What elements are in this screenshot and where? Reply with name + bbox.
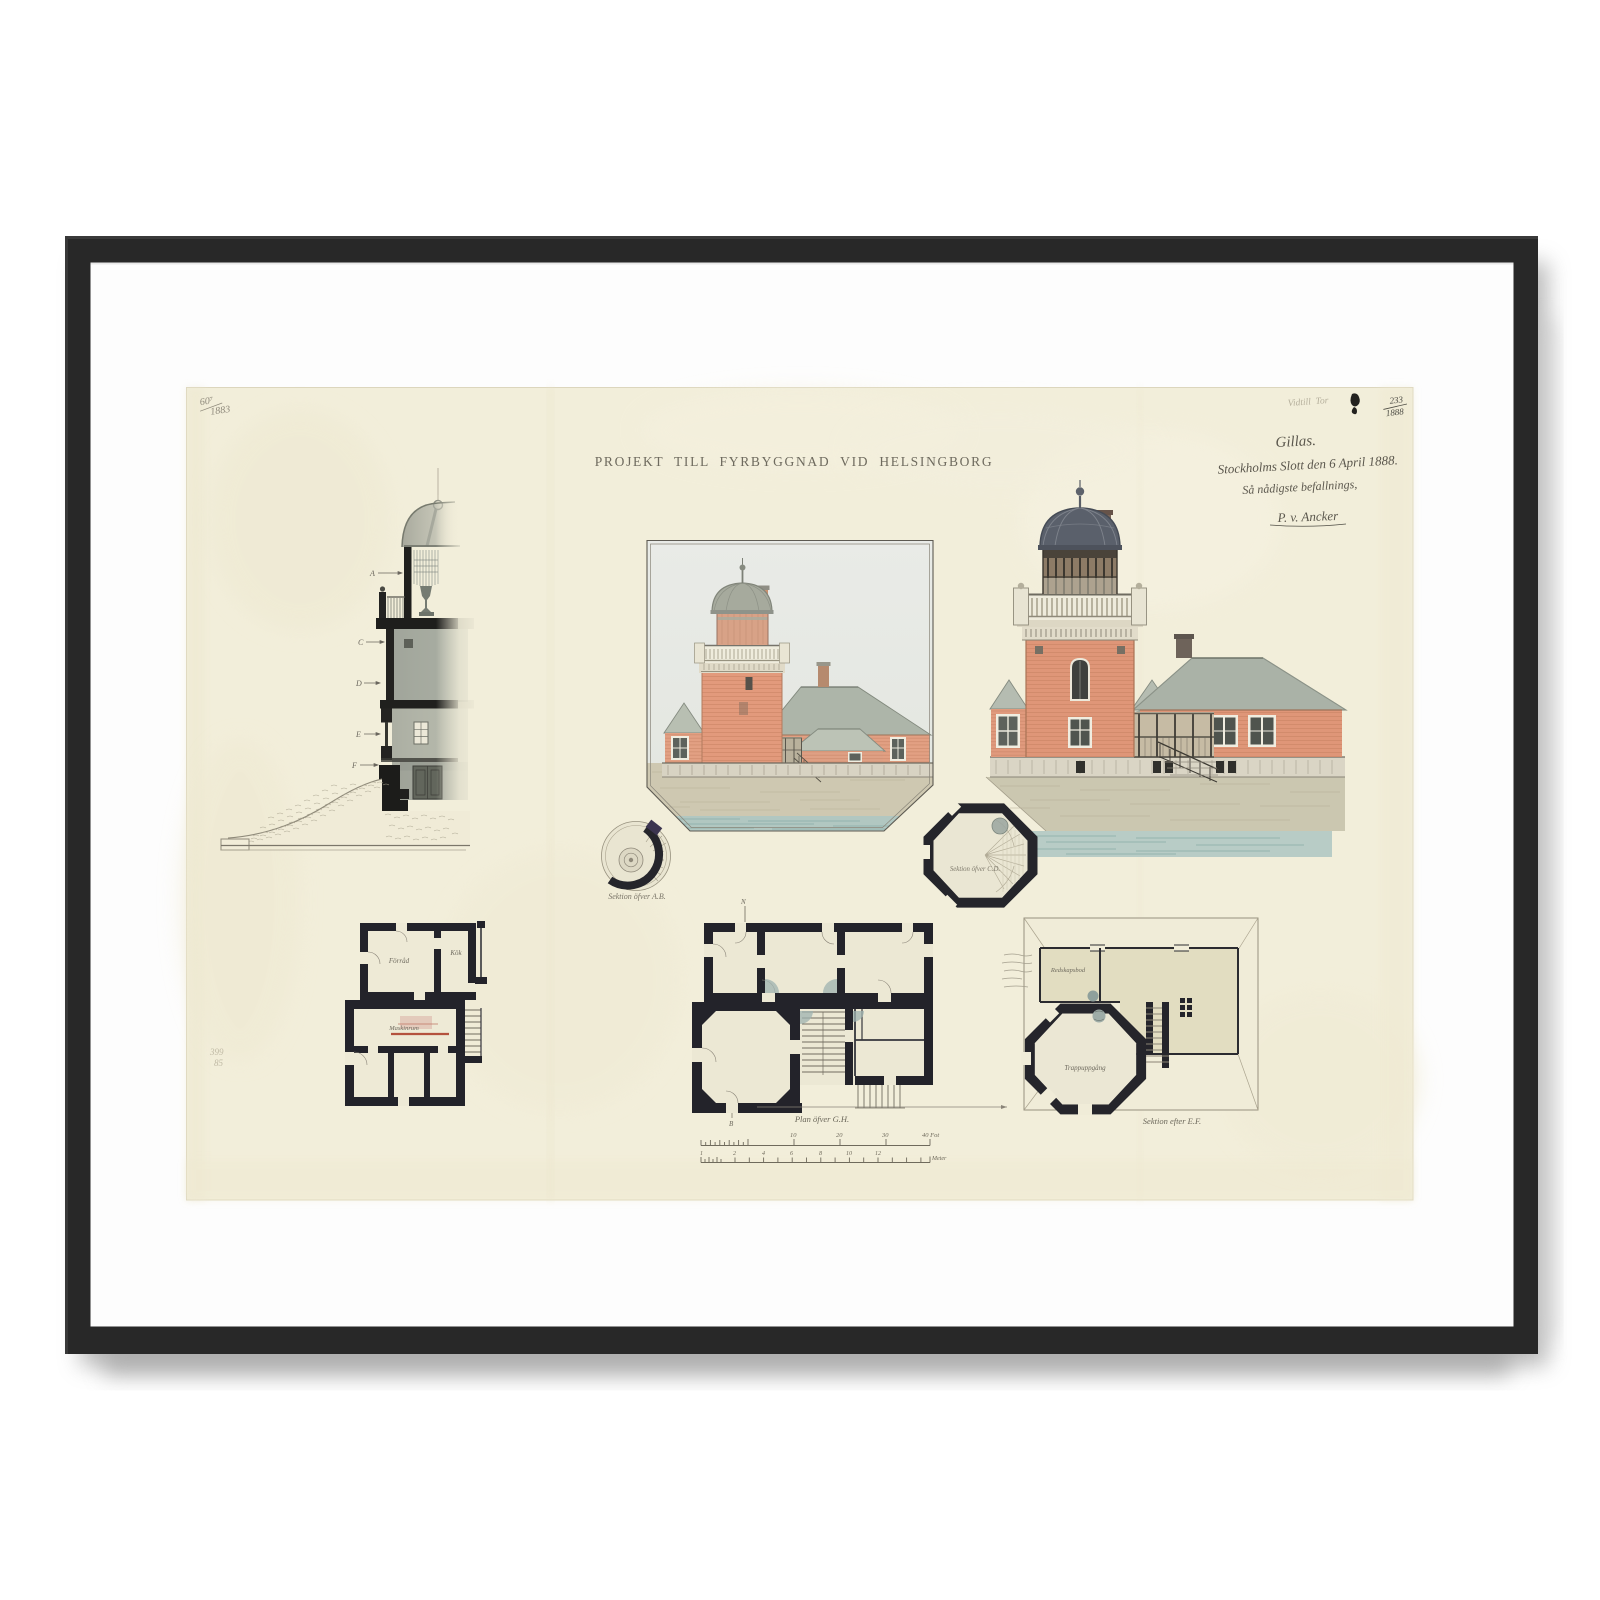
svg-text:Plan öfver G.H.: Plan öfver G.H. [794,1114,849,1124]
svg-text:PROJEKT TILL FYRBYGGNAD VID HE: PROJEKT TILL FYRBYGGNAD VID HELSINGBORG [595,454,994,469]
svg-text:10: 10 [846,1151,852,1157]
svg-text:40 Fot: 40 Fot [922,1132,939,1139]
svg-text:2: 2 [733,1151,736,1157]
svg-text:A: A [369,569,375,578]
svg-text:Gillas.: Gillas. [1275,433,1316,451]
svg-text:1: 1 [700,1151,703,1157]
svg-text:E: E [355,730,361,739]
svg-text:C: C [358,638,364,647]
svg-text:B: B [729,1120,734,1128]
svg-text:Trappuppgång: Trappuppgång [1064,1064,1106,1072]
svg-text:Sektion öfver C.D.: Sektion öfver C.D. [950,866,1001,873]
svg-text:Sektion efter E.F.: Sektion efter E.F. [1143,1116,1201,1126]
svg-text:D: D [355,679,362,688]
svg-text:Kök: Kök [449,949,462,957]
svg-text:4: 4 [762,1150,765,1157]
svg-text:10: 10 [790,1132,797,1139]
svg-text:6: 6 [790,1151,793,1157]
svg-text:20: 20 [836,1132,843,1139]
svg-text:8: 8 [819,1151,822,1157]
svg-text:F: F [351,761,357,770]
svg-text:P. v. Ancker: P. v. Ancker [1276,508,1339,525]
svg-text:Meter: Meter [931,1156,947,1162]
svg-text:N: N [740,898,746,906]
svg-text:399: 399 [209,1047,224,1057]
svg-text:Redskapsbod: Redskapsbod [1050,967,1086,974]
svg-text:Förråd: Förråd [388,957,410,965]
svg-text:Maskinrum: Maskinrum [388,1025,419,1032]
svg-text:Sektion öfver A.B.: Sektion öfver A.B. [608,892,666,901]
svg-text:30: 30 [881,1132,889,1139]
svg-text:85: 85 [214,1058,224,1068]
svg-text:12: 12 [875,1151,881,1157]
svg-text:233: 233 [1389,394,1404,405]
